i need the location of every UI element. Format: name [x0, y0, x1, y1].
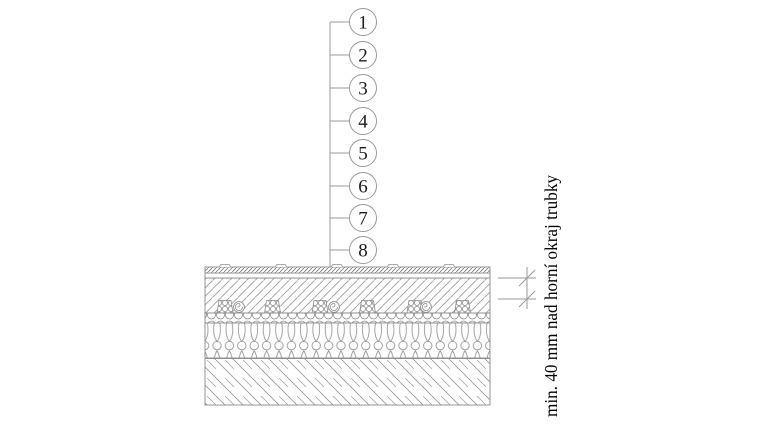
callout-number: 6	[358, 177, 368, 198]
tile-joint	[331, 264, 343, 267]
nub	[312, 301, 328, 314]
callout-6: 6	[330, 173, 377, 200]
layer-adhesive	[205, 273, 490, 278]
callout-number: 1	[358, 13, 368, 34]
layer-insulation	[205, 323, 490, 358]
floor-assembly	[205, 264, 490, 405]
callout-3: 3	[330, 75, 377, 102]
layer-tile	[205, 267, 490, 273]
heating-pipe-icon	[421, 302, 432, 313]
callout-number: 5	[358, 144, 368, 165]
tile-joint	[275, 264, 287, 267]
heating-pipe-icon	[329, 302, 340, 313]
callout-8: 8	[330, 237, 377, 264]
callout-number: 8	[358, 241, 368, 262]
heating-pipe-icon	[234, 302, 245, 313]
layer-system-board-base	[205, 313, 490, 323]
nub	[360, 301, 376, 314]
callout-4: 4	[330, 108, 377, 135]
annotation-rotated-label: min. 40 mm nad horní okraj trubky	[541, 175, 561, 417]
callout-number: 3	[358, 79, 368, 100]
dimension-mark	[498, 267, 536, 309]
nub	[265, 301, 281, 314]
callout-number: 4	[358, 112, 368, 133]
callout-1: 1	[330, 9, 377, 36]
nub	[455, 301, 471, 314]
tile-joint	[387, 264, 399, 267]
tile-joint	[443, 264, 455, 267]
callout-number: 7	[358, 209, 368, 230]
layer-screed	[205, 278, 490, 313]
technical-drawing-floor-detail: 1 2 3 4 5 6 7 8	[0, 0, 768, 432]
drawing-canvas: 1 2 3 4 5 6 7 8	[0, 0, 768, 432]
callout-7: 7	[330, 205, 377, 232]
callout-2: 2	[330, 42, 377, 69]
callout-number: 2	[358, 46, 368, 67]
tile-joint	[219, 264, 231, 267]
layer-concrete-slab	[205, 359, 490, 406]
nub	[217, 301, 233, 314]
callout-5: 5	[330, 140, 377, 167]
